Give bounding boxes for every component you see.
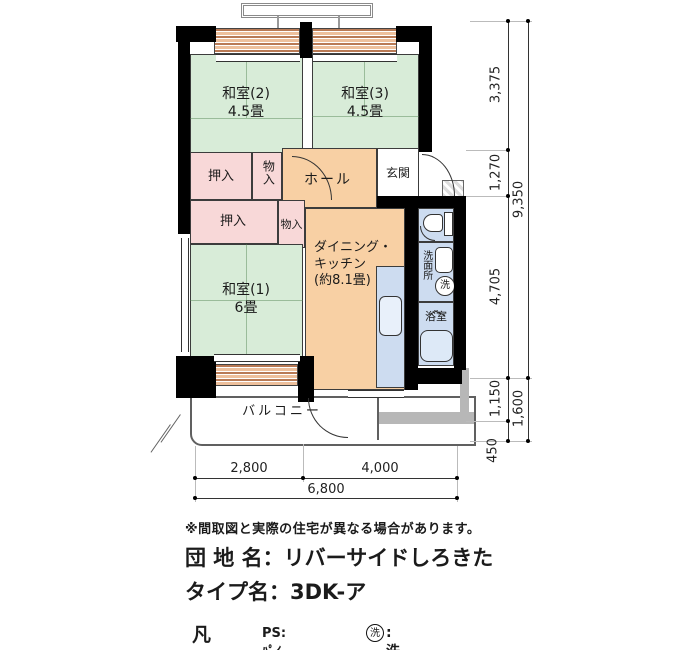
type-name-value: 3DK-ア <box>290 580 366 604</box>
window-bottom-dk <box>348 390 404 398</box>
dim-line-horizontal-inner <box>195 478 457 479</box>
genkan-label: 玄関 <box>377 166 419 181</box>
floor-plan-page: バルコニー 洗 <box>0 0 700 650</box>
balcony-break-line-1 <box>161 414 183 444</box>
washing-machine-icon: 洗 <box>435 276 455 296</box>
legend-title: 凡例 <box>192 620 213 650</box>
washitsu1-size: 6畳 <box>200 300 292 318</box>
dim-tick <box>526 376 530 380</box>
washitsu1-name: 和室(1) <box>200 282 292 300</box>
estate-name-value: リバーサイドしろきた <box>284 546 494 570</box>
dim-v-total-9350: 9,350 <box>512 170 527 230</box>
top-railing <box>241 3 373 18</box>
dim-tick <box>506 194 510 198</box>
washitsu3-label: 和室(3) 4.5畳 <box>319 86 411 122</box>
dim-tick <box>193 476 197 480</box>
legend-laundry-text: :洗濯機置場 <box>386 625 400 650</box>
estate-name-label: 団 地 名： <box>185 546 284 570</box>
wall-right-upper <box>419 30 432 152</box>
type-name-label: タイプ名： <box>185 580 290 604</box>
dim-tick <box>455 496 459 500</box>
washitsu2-name: 和室(2) <box>200 86 292 104</box>
toilet-tank-icon <box>444 212 453 236</box>
estate-name-line: 団 地 名：リバーサイドしろきた <box>185 542 493 572</box>
dim-tick <box>526 439 530 443</box>
washbasin-icon <box>435 247 453 273</box>
dim-tick <box>526 19 530 23</box>
veranda-deck-bottom <box>214 364 298 386</box>
wall-left-bottom-block <box>176 356 216 398</box>
entrance-door-arc <box>422 154 455 196</box>
dim-extension-line <box>195 446 196 502</box>
balcony-break-line-2 <box>151 424 173 454</box>
dk-label-line3: (約8.1畳) <box>314 273 400 290</box>
washitsu2-label: 和室(2) 4.5畳 <box>200 86 292 122</box>
type-name-line: タイプ名：3DK-ア <box>185 576 366 606</box>
window-bottom-washitsu1 <box>214 354 300 362</box>
bathtub-icon <box>420 330 453 362</box>
hall-label: ホール <box>288 172 368 190</box>
legend-laundry-circle-icon: 洗 <box>366 624 384 642</box>
dk-label: ダイニング・ キッチン (約8.1畳) <box>314 240 400 290</box>
window-top-right <box>313 54 397 62</box>
kitchen-sink-icon <box>379 296 402 336</box>
dim-v-total-1600: 1,600 <box>512 379 527 439</box>
dim-extension-line <box>470 21 532 22</box>
dim-h-2800: 2,800 <box>219 461 279 476</box>
wall-bath-bottom <box>405 368 462 384</box>
mononyu-lower-label: 物入 <box>278 218 305 232</box>
legend-ps-text: PS:ﾊﾟｲﾌﾟｽﾍﾟｰｽ <box>262 626 286 650</box>
dim-tick <box>506 148 510 152</box>
yokushitsu-label: 浴室 <box>418 310 454 324</box>
dim-tick <box>455 476 459 480</box>
dim-tick <box>506 19 510 23</box>
dk-label-line2: キッチン <box>314 257 400 274</box>
dim-v-1150: 1,150 <box>489 369 504 429</box>
washitsu3-size: 4.5畳 <box>319 104 411 122</box>
railing-post-1 <box>277 16 279 28</box>
dim-extension-line <box>470 441 532 442</box>
wall-sanitary-left <box>405 208 418 390</box>
window-top-left <box>216 54 300 62</box>
dim-v-4705: 4,705 <box>489 257 504 317</box>
washitsu2-size: 4.5畳 <box>200 104 292 122</box>
dim-v-3375: 3,375 <box>489 55 504 115</box>
wall-left <box>178 30 190 234</box>
mononyu-upper-label: 物入 <box>260 160 275 186</box>
washitsu3-name: 和室(3) <box>319 86 411 104</box>
dim-line-horizontal-outer <box>195 498 457 499</box>
veranda-deck-right <box>312 28 397 54</box>
washitsu1-label: 和室(1) 6畳 <box>200 282 292 318</box>
dim-tick <box>301 476 305 480</box>
dim-h-total-6800: 6,800 <box>296 482 356 497</box>
window-left <box>181 238 189 352</box>
dim-v-1270: 1,270 <box>489 143 504 203</box>
wall-washitsu1-right-pillar <box>298 356 314 402</box>
railing-post-2 <box>338 16 340 28</box>
wall-genkan-bottom <box>377 196 466 208</box>
dim-tick <box>506 376 510 380</box>
oshiire-upper-label: 押入 <box>192 169 250 186</box>
wall-top-mid-pillar <box>300 22 312 58</box>
senmenjo-label: 洗面所 <box>419 250 432 280</box>
oshiire-lower-label: 押入 <box>204 214 262 231</box>
dim-tick <box>506 419 510 423</box>
dim-h-4000: 4,000 <box>350 461 410 476</box>
dim-tick <box>506 439 510 443</box>
wall-right-outer <box>454 200 466 370</box>
disclaimer-text: ※間取図と実際の住宅が異なる場合があります。 <box>185 518 480 537</box>
dim-extension-line <box>457 446 458 502</box>
dk-label-line1: ダイニング・ <box>314 240 400 257</box>
dim-v-450: 450 <box>486 421 501 481</box>
dim-tick <box>193 496 197 500</box>
veranda-deck-left <box>214 28 300 54</box>
